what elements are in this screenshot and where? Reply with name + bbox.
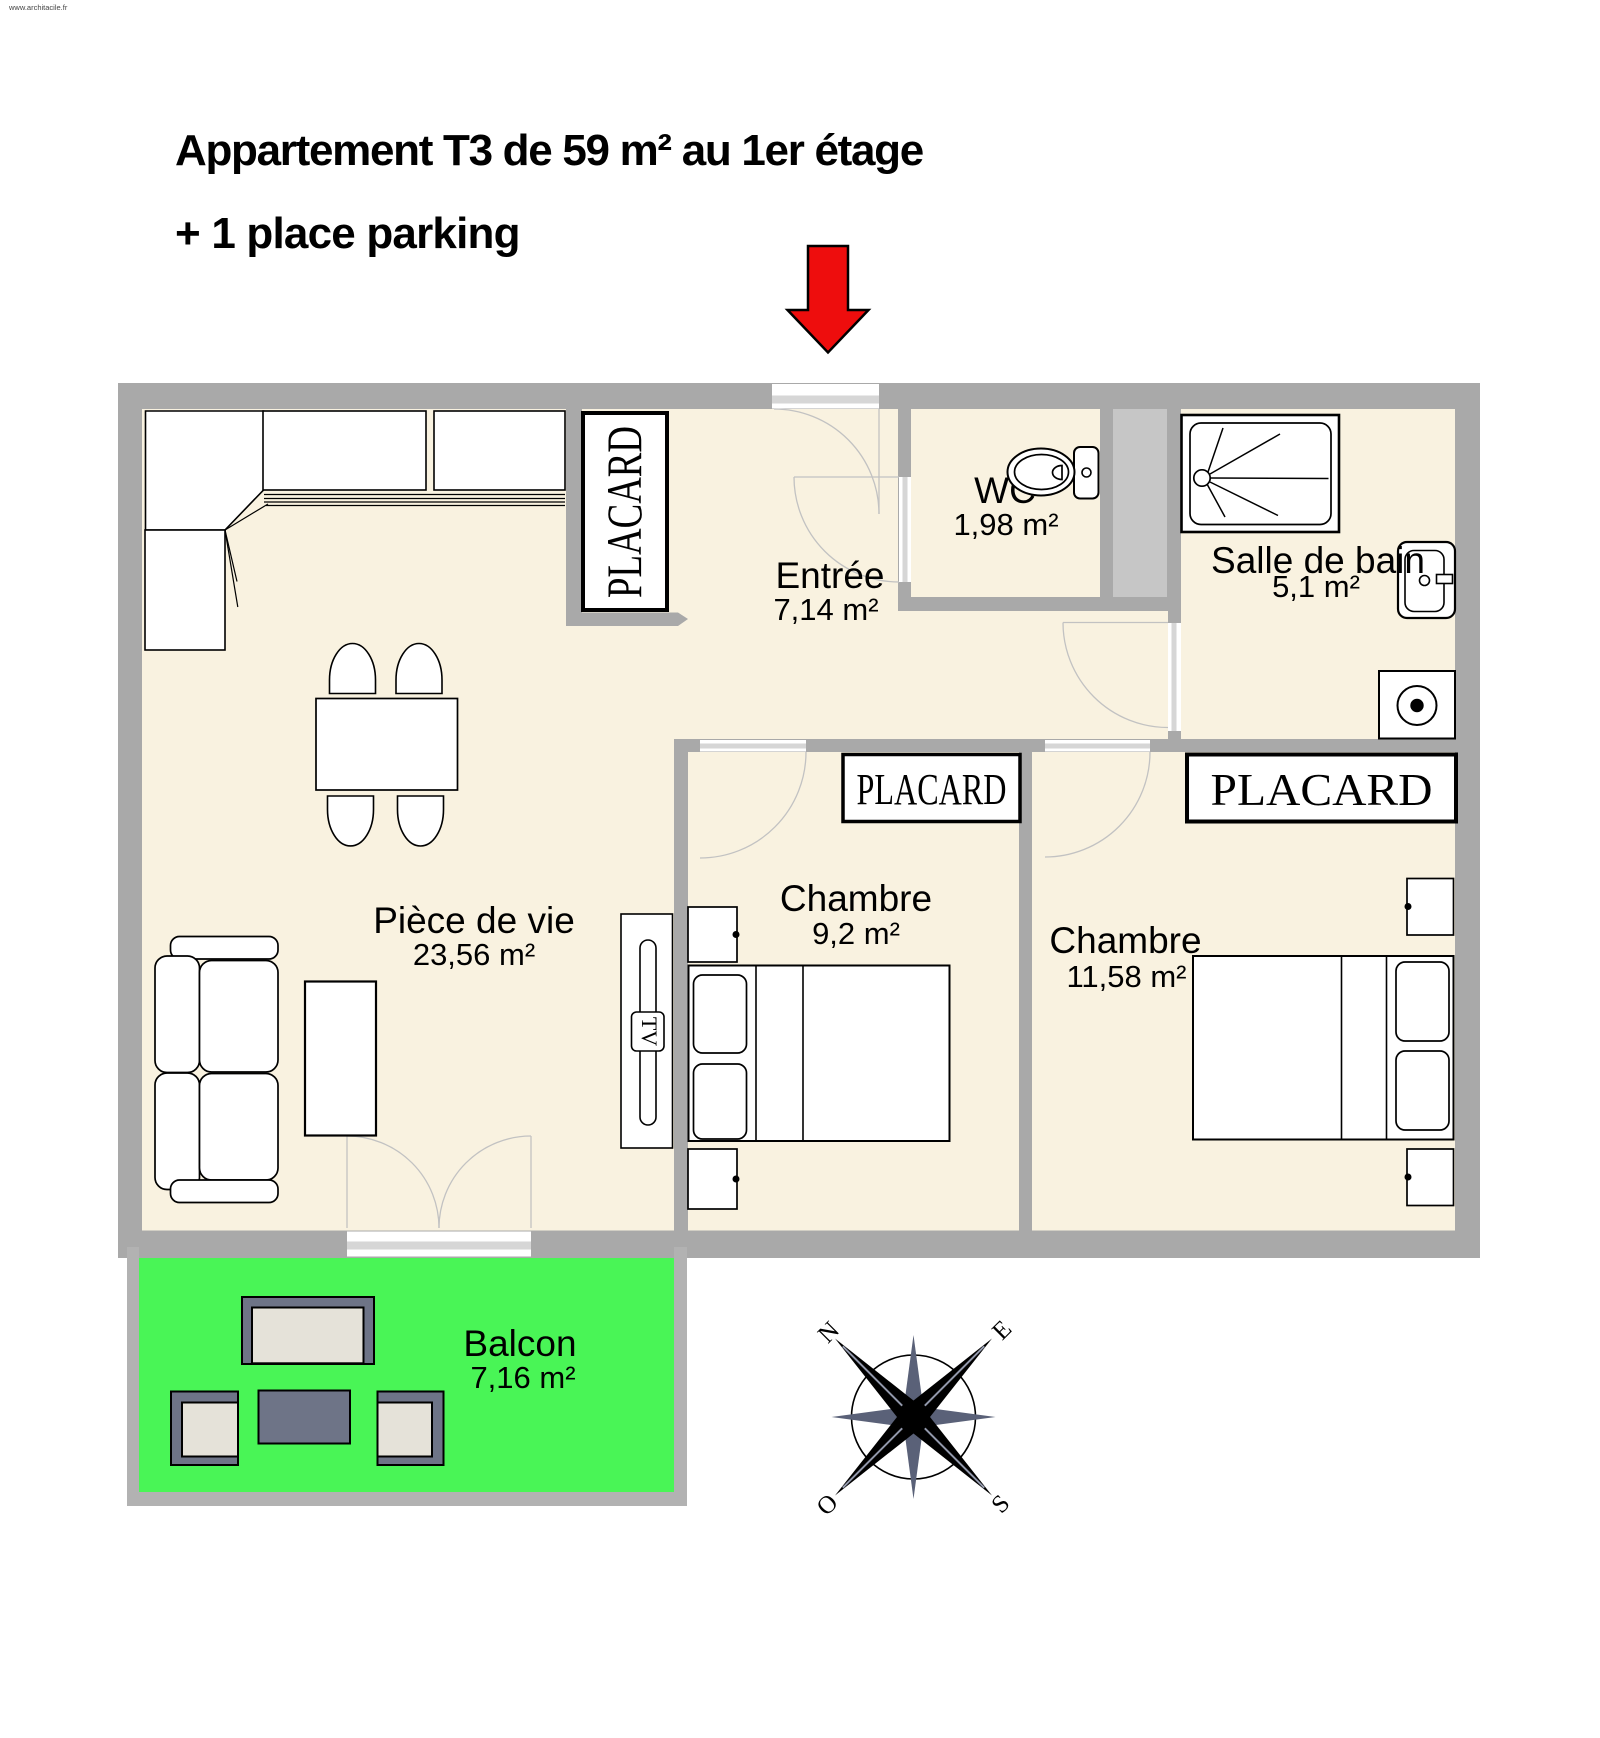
svg-text:TV: TV (637, 1017, 662, 1046)
svg-text:Balcon: Balcon (463, 1323, 576, 1364)
svg-text:+ 1 place parking: + 1 place parking (175, 209, 520, 258)
svg-text:1,98 m²: 1,98 m² (953, 507, 1058, 542)
svg-text:Entrée: Entrée (775, 555, 884, 596)
svg-text:9,2 m²: 9,2 m² (812, 916, 900, 951)
svg-text:Chambre: Chambre (1049, 920, 1201, 961)
svg-text:11,58 m²: 11,58 m² (1066, 959, 1186, 994)
svg-text:Appartement T3 de 59 m² au 1er: Appartement T3 de 59 m² au 1er étage (175, 126, 923, 175)
svg-text:www.architacile.fr: www.architacile.fr (8, 3, 68, 12)
svg-text:5,1 m²: 5,1 m² (1272, 569, 1360, 604)
svg-text:23,56 m²: 23,56 m² (413, 937, 535, 972)
svg-text:PLACARD: PLACARD (857, 765, 1007, 814)
svg-text:PLACARD: PLACARD (1211, 764, 1433, 815)
svg-text:E: E (987, 1315, 1017, 1345)
svg-text:7,14 m²: 7,14 m² (773, 592, 878, 627)
svg-text:PLACARD: PLACARD (596, 426, 652, 598)
svg-text:Pièce de vie: Pièce de vie (373, 900, 575, 941)
svg-text:S: S (986, 1490, 1015, 1519)
svg-text:O: O (812, 1489, 844, 1521)
svg-text:7,16 m²: 7,16 m² (470, 1360, 575, 1395)
svg-text:Chambre: Chambre (780, 878, 932, 919)
